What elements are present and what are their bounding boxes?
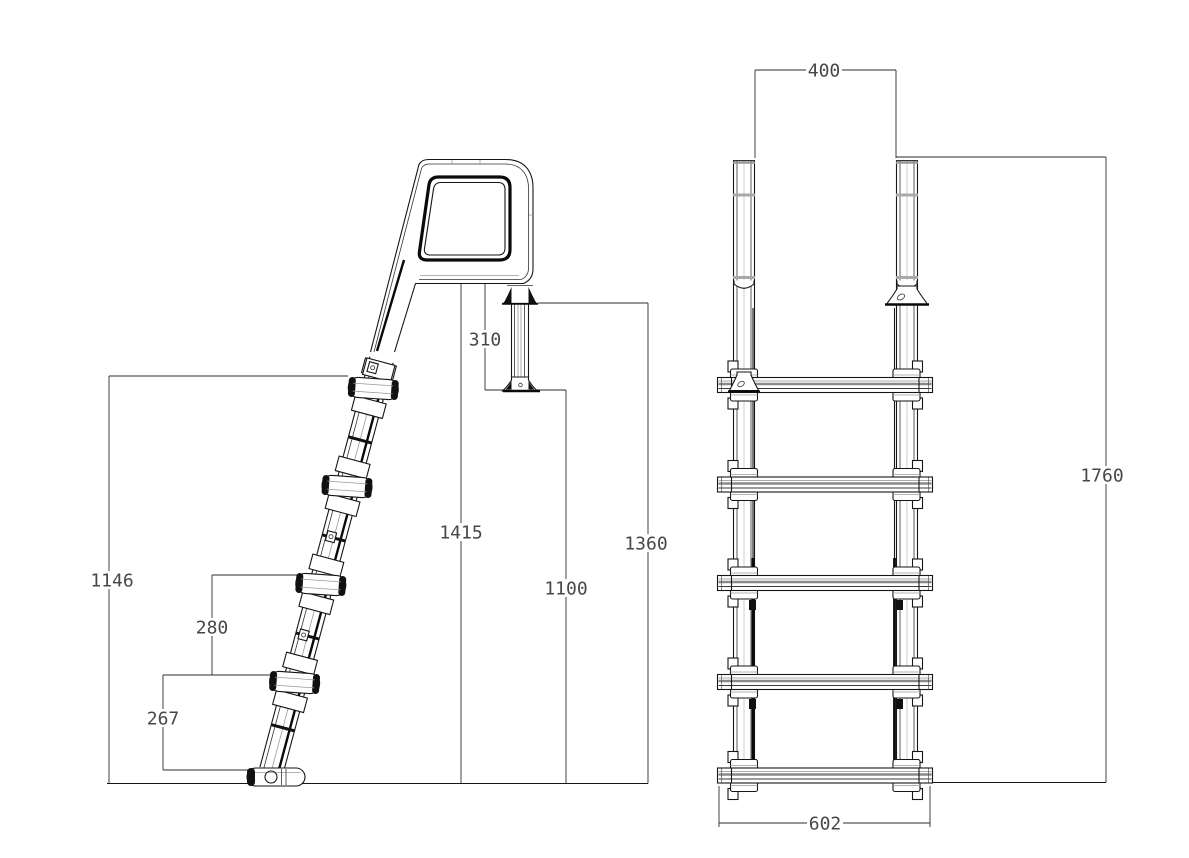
drawing-canvas: 1146 280 267 1415 310 1100 1360 400 1760…	[0, 0, 1189, 858]
handle-opening	[424, 183, 505, 256]
rail-clip	[325, 531, 336, 543]
socket-hook	[896, 699, 903, 709]
inclined-rail	[256, 356, 397, 775]
step-collar-3	[295, 573, 346, 596]
dim-label-1360: 1360	[624, 534, 667, 555]
dim-label-267: 267	[147, 709, 180, 730]
dim-label-1760: 1760	[1080, 466, 1123, 487]
step-collar-4	[269, 671, 320, 694]
step-collar-2	[321, 475, 372, 498]
dim-label-310: 310	[469, 330, 502, 351]
dimension-lines-side-view	[107, 284, 648, 784]
dim-400	[755, 70, 896, 158]
socket-hook	[749, 600, 756, 610]
dimension-lines-front-view	[719, 70, 1106, 827]
dim-label-400: 400	[808, 61, 841, 82]
step-collar-1	[348, 377, 399, 400]
front-view-drawing	[718, 161, 933, 800]
dim-label-1100: 1100	[544, 579, 587, 600]
dimension-labels: 1146 280 267 1415 310 1100 1360 400 1760…	[89, 61, 1125, 835]
dim-label-1415: 1415	[439, 523, 482, 544]
dim-label-1146: 1146	[90, 571, 133, 592]
ladder-handle	[371, 160, 534, 353]
dim-280	[163, 575, 300, 675]
deck-flange-front	[885, 286, 929, 305]
post-bottom-flange	[503, 377, 541, 391]
dim-label-602: 602	[809, 814, 842, 835]
socket-hook	[749, 699, 756, 709]
dim-label-280: 280	[196, 618, 229, 639]
post-top-flange	[502, 286, 538, 304]
ladder-foot	[247, 768, 305, 786]
socket-hook	[896, 600, 903, 610]
rail-clip	[298, 629, 309, 641]
side-view-drawing	[247, 160, 540, 787]
deck-post	[502, 286, 540, 392]
ladder-technical-drawing: 1146 280 267 1415 310 1100 1360 400 1760…	[0, 0, 1189, 858]
